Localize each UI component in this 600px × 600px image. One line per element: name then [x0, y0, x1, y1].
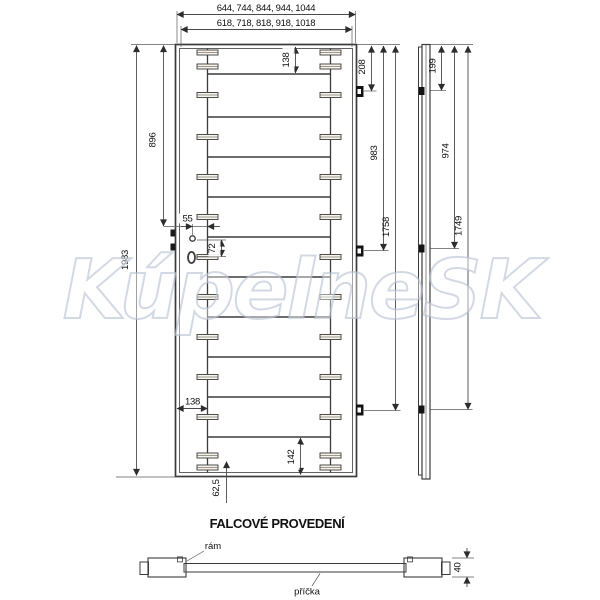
- crossbar-leader-line: [312, 574, 320, 587]
- side-hinge-bottom-label: 1749: [454, 216, 465, 236]
- handle-height-label: 896: [148, 133, 159, 148]
- door-technical-drawing: 644, 744, 844, 944, 1044 618, 718, 818, …: [0, 0, 600, 600]
- technical-drawing-page: 644, 744, 844, 944, 1044 618, 718, 818, …: [0, 0, 600, 600]
- section-view: rám příčka 40: [140, 541, 474, 598]
- section-crossbar-board: [184, 564, 406, 573]
- section-right-rebate: [442, 562, 451, 575]
- hinge-slot: [358, 89, 362, 94]
- section-title: FALCOVÉ PROVEDENÍ: [210, 516, 346, 531]
- key-hole: [190, 236, 195, 241]
- hinge-slot: [358, 408, 362, 413]
- inner-width-label: 618, 718, 818, 918, 1018: [217, 18, 315, 29]
- outer-width-label: 644, 744, 844, 944, 1044: [217, 3, 315, 14]
- lock-faceplate-upper: [171, 230, 176, 237]
- hinge-top-label: 208: [357, 60, 368, 75]
- dowel-offset-label: 62,5: [211, 479, 222, 496]
- watermark-text: KúpelneSK: [63, 243, 549, 338]
- top-rail-height-label: 138: [281, 53, 292, 68]
- frame-label: rám: [205, 541, 221, 552]
- frame-leader-line: [187, 551, 204, 561]
- side-hinge-middle-label: 974: [441, 144, 452, 159]
- stile-width-label: 138: [185, 397, 200, 408]
- section-left-stile: [148, 558, 186, 577]
- hinge-middle-label: 983: [369, 146, 380, 161]
- lock-offset-label: 55: [183, 214, 193, 225]
- crossbar-label: příčka: [294, 587, 321, 598]
- hinge-mark-side: [419, 87, 425, 95]
- side-hinge-top-label: 199: [428, 59, 439, 74]
- section-left-rebate: [140, 562, 149, 575]
- door-thickness-label: 40: [453, 563, 464, 573]
- hinge-mark-side: [419, 406, 425, 414]
- bottom-rail-height-label: 142: [286, 450, 297, 465]
- hinge-bottom-label: 1758: [381, 217, 392, 237]
- section-right-stile: [404, 558, 442, 577]
